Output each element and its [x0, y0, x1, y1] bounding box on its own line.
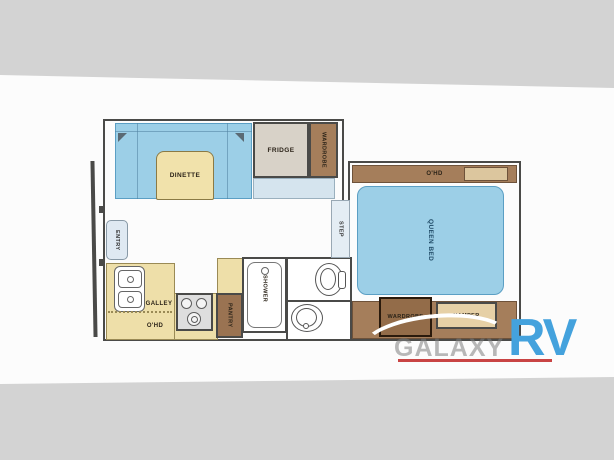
galley-label: GALLEY — [138, 299, 180, 308]
shower-stall: SHOWER — [247, 262, 282, 328]
drain-icon — [261, 267, 269, 275]
brand-rv-text: RV — [508, 312, 575, 364]
toilet-bowl-icon — [320, 268, 336, 290]
counter-shelf — [253, 178, 335, 199]
entry-door: ENTRY — [106, 220, 128, 260]
fridge: FRIDGE — [253, 122, 309, 178]
sink-bowl-icon — [118, 270, 142, 288]
dinette-seat-divider — [227, 123, 228, 199]
pantry: PANTRY — [216, 293, 243, 338]
counter-cabinet — [217, 258, 243, 294]
listing-photo: DINETTE FRIDGE WARDROBE ENTRY STEP GALLE… — [0, 0, 614, 460]
wardrobe-cabinet: WARDROBE — [309, 122, 338, 178]
burner-icon — [181, 298, 192, 309]
burner-icon — [196, 298, 207, 309]
corner-gusset-icon — [235, 133, 244, 142]
overhead-cabinet-door — [464, 167, 508, 181]
dinette-seat-divider — [137, 123, 138, 199]
step: STEP — [331, 200, 350, 258]
door-jamb — [99, 259, 105, 266]
toilet-tank-icon — [338, 271, 346, 289]
drain-icon — [127, 296, 134, 303]
faucet-icon — [303, 323, 309, 329]
counter-edge-dots — [108, 311, 172, 313]
bathroom-divider-wall — [288, 300, 350, 302]
queen-bed: QUEEN BED — [357, 186, 504, 295]
corner-gusset-icon — [118, 133, 127, 142]
shower-label: SHOWER — [262, 275, 268, 327]
drain-icon — [127, 276, 134, 283]
galley-overhead-label: O'HD — [137, 321, 173, 330]
burner-icon — [187, 312, 201, 326]
door-jamb — [99, 206, 105, 213]
dinette-seatback-line — [115, 131, 252, 132]
dinette-table: DINETTE — [156, 151, 214, 200]
